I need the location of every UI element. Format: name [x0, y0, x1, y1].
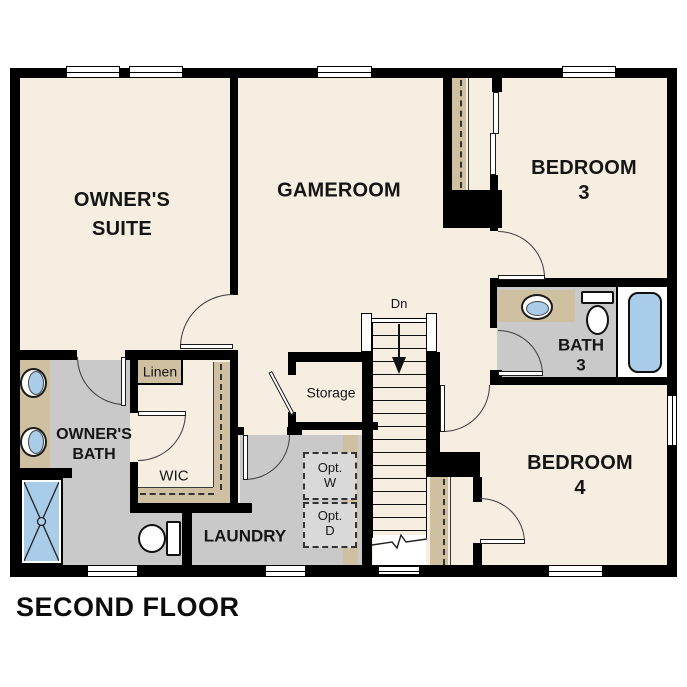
bedroom4-closet-rod	[443, 479, 445, 565]
window-owners-suite-1	[66, 66, 120, 78]
window-stairwell	[378, 566, 420, 575]
wic-shelf-edge-h	[138, 487, 213, 488]
bedroom3-closet-edge	[468, 78, 469, 190]
bedroom4-closet-shelf	[430, 477, 448, 567]
owners-bath-label: OWNER'S BATH	[56, 425, 132, 465]
wic-rod-line-bottom	[140, 493, 214, 495]
bath3-label: BATH 3	[558, 336, 604, 377]
stair-newel-right	[426, 313, 437, 352]
bedroom4-closet-edge	[450, 477, 451, 567]
window-owners-bath	[87, 565, 138, 577]
wall-laundry-top-a	[233, 427, 244, 435]
wic-rod-line	[220, 364, 222, 490]
wall-bedroom4-closet-right-b	[473, 543, 482, 567]
wall-suite-bottom-a	[20, 350, 77, 360]
bedroom4-closet-door-leaf	[480, 539, 525, 544]
wall-stair-right	[427, 352, 440, 452]
owners-bath-sink-2	[20, 427, 47, 457]
laundry-label: LAUNDRY	[204, 525, 286, 546]
wall-stair-left	[362, 352, 372, 567]
laundry-door-leaf	[243, 435, 248, 480]
stair-down-arrow-head	[392, 357, 406, 374]
wall-suite-bottom-b	[125, 350, 238, 360]
window-owners-suite-2	[129, 66, 183, 78]
wall-vanity-end	[20, 468, 72, 478]
window-bedroom3	[562, 66, 616, 78]
exterior-wall-left	[10, 68, 20, 577]
owners-bath-toilet-bowl	[138, 524, 166, 553]
window-bedroom4-east	[667, 395, 677, 446]
bedroom3-label: BEDROOM 3	[531, 156, 637, 206]
owners-bath-door-leaf	[121, 357, 126, 406]
owners-suite-label: OWNER'S SUITE	[74, 186, 170, 244]
owners-suite-door-leaf	[180, 344, 233, 349]
sink-bowl	[28, 371, 44, 395]
wall-wic-left-a	[130, 360, 138, 413]
opt-washer-label: Opt. W	[318, 461, 343, 491]
bedroom3-bypass-door-2	[490, 133, 496, 175]
floor-plan-page: OWNER'S SUITE GAMEROOM BEDROOM 3 BEDROOM…	[0, 0, 687, 687]
bedroom4-door-leaf	[440, 385, 445, 432]
gameroom-label: GAMEROOM	[277, 179, 401, 204]
stairs-down-label: Dn	[391, 296, 408, 312]
window-gameroom	[317, 66, 372, 78]
bedroom3-door-leaf	[498, 275, 545, 280]
linen-label: Linen	[143, 363, 177, 381]
bath3-sink	[521, 294, 553, 320]
wall-wic-bottom	[130, 503, 252, 513]
exterior-wall-right	[667, 68, 677, 577]
window-bedroom4-south	[548, 565, 603, 577]
wic-door-leaf	[138, 411, 186, 416]
opt-dryer-label: Opt. D	[318, 509, 343, 539]
wall-suite-gameroom	[230, 78, 238, 295]
storage-label: Storage	[306, 384, 355, 402]
wall-bedroom4-closet-block	[427, 452, 480, 477]
sink-bowl	[526, 301, 549, 316]
wall-bath-laundry-divider	[182, 513, 192, 567]
owners-bath-sink-1	[20, 368, 47, 398]
window-laundry	[265, 565, 306, 577]
bedroom4-label: BEDROOM 4	[527, 451, 634, 501]
wic-shelf-side	[214, 362, 230, 503]
bedroom3-closet-shelf	[452, 78, 466, 190]
stair-break-line	[372, 533, 427, 553]
bedroom3-bypass-door-1	[493, 92, 499, 134]
bedroom3-closet-rod	[460, 80, 462, 188]
owners-bath-toilet-tank	[166, 521, 181, 556]
stair-down-arrow-shaft	[398, 324, 400, 357]
wall-bedroom3-west	[490, 175, 498, 231]
bath3-toilet-bowl	[586, 305, 609, 335]
sink-bowl	[28, 430, 44, 454]
wall-bath3-bottom	[497, 377, 667, 385]
floor-title: SECOND FLOOR	[16, 592, 240, 623]
wall-bedroom3-closet-left	[443, 72, 452, 190]
shower	[20, 478, 63, 565]
shower-glass-pattern	[24, 482, 59, 561]
bath3-toilet-tank	[581, 291, 614, 304]
wic-shelf-edge-v	[213, 362, 214, 487]
bath3-bathtub	[628, 292, 662, 373]
bath3-door-leaf	[498, 371, 543, 376]
wall-storage-top	[288, 352, 372, 362]
wic-shelf-bottom	[138, 487, 214, 503]
wic-label: WIC	[159, 468, 188, 487]
stair-newel-left	[361, 313, 372, 352]
wall-bedroom3-top-stub	[492, 68, 502, 92]
